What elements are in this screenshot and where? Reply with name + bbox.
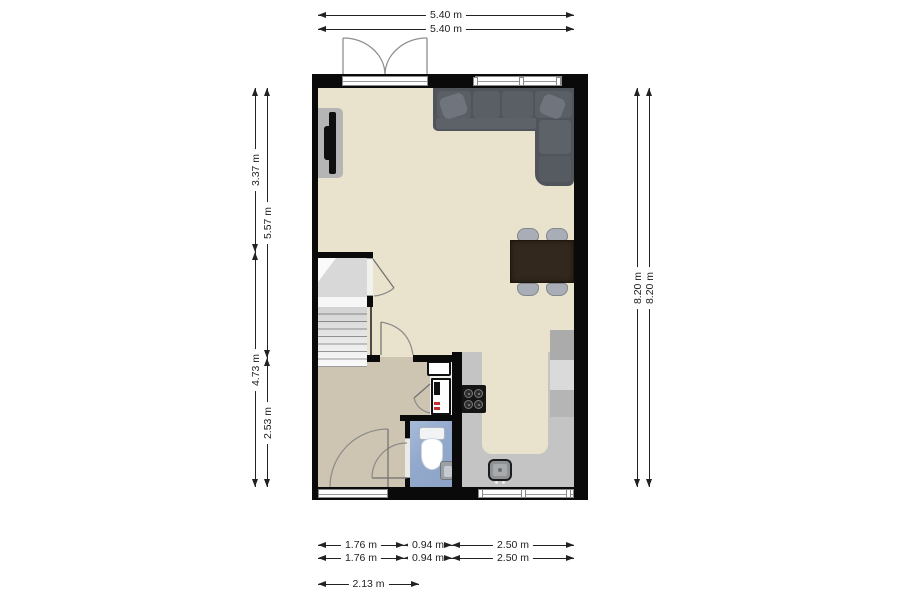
dim-label: 0.94 m: [408, 539, 448, 551]
dim-right-2: 8.20 m: [649, 88, 650, 487]
dim-label: 8.20 m: [644, 266, 656, 308]
dim-bottom1-3: 2.50 m: [452, 545, 574, 546]
dim-label: 0.94 m: [408, 552, 448, 564]
dim-top-1: 5.40 m: [318, 15, 574, 16]
dim-label: 1.76 m: [341, 552, 381, 564]
dim-label: 5.40 m: [426, 9, 466, 21]
dim-label: 2.13 m: [348, 578, 388, 590]
dim-label: 2.50 m: [493, 552, 533, 564]
dim-right-1: 8.20 m: [637, 88, 638, 487]
dim-label: 4.73 m: [250, 348, 262, 390]
dim-label: 3.37 m: [250, 149, 262, 191]
dim-label: 5.40 m: [426, 23, 466, 35]
dim-label: 8.20 m: [632, 266, 644, 308]
dim-bottom1-1: 1.76 m: [318, 545, 404, 546]
dim-left-outer-2: 4.73 m: [255, 252, 256, 487]
floor-plan-canvas: 5.40 m 5.40 m 3.37 m 4.73 m 5.57 m 2.53 …: [0, 0, 900, 600]
utility-door-swing: [414, 384, 430, 413]
toilet-door-swing: [372, 443, 407, 478]
dim-bottom3-1: 2.13 m: [318, 584, 419, 585]
dim-bottom1-2: 0.94 m: [404, 545, 452, 546]
hall-door-swing: [381, 322, 413, 355]
french-doors-icon: [343, 38, 427, 74]
dim-label: 1.76 m: [341, 539, 381, 551]
dim-label: 5.57 m: [262, 202, 274, 244]
dim-bottom2-2: 0.94 m: [404, 558, 452, 559]
dim-left-inner-2: 2.53 m: [267, 358, 268, 487]
door-swings-layer: [0, 0, 900, 600]
dim-left-outer-1: 3.37 m: [255, 88, 256, 252]
dim-bottom2-1: 1.76 m: [318, 558, 404, 559]
dim-label: 2.53 m: [262, 401, 274, 443]
stairs-door-swing: [373, 259, 394, 296]
dim-top-2: 5.40 m: [318, 29, 574, 30]
dim-label: 2.50 m: [493, 539, 533, 551]
dim-left-inner-1: 5.57 m: [267, 88, 268, 358]
dim-bottom2-3: 2.50 m: [452, 558, 574, 559]
